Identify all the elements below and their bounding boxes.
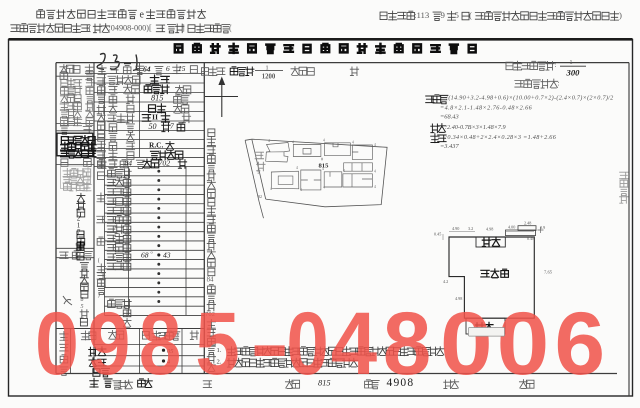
svg-text:9: 9 [87, 293, 130, 393]
svg-text:4: 4 [374, 170, 376, 174]
svg-text:4: 4 [292, 141, 294, 145]
svg-text:8: 8 [383, 293, 431, 393]
svg-text:84: 84 [207, 276, 214, 283]
svg-text:0: 0 [286, 293, 328, 393]
svg-text:5: 5 [195, 293, 240, 393]
svg-text:]: ] [182, 24, 185, 33]
svg-text:50: 50 [149, 122, 157, 131]
svg-text:0.48: 0.48 [527, 236, 534, 241]
svg-text:1: 1 [257, 170, 259, 175]
svg-text:1: 1 [569, 59, 572, 66]
svg-text::0.34×0.48+2×2.4×0.28×3 =1.48+: :0.34×0.48+2×2.4×0.28×3 =1.48+2.66 [445, 134, 557, 141]
svg-text:3.2: 3.2 [468, 226, 473, 231]
svg-text:4: 4 [331, 295, 377, 394]
svg-text:4: 4 [268, 139, 270, 143]
svg-text:4.98: 4.98 [486, 227, 493, 232]
svg-text:6: 6 [166, 64, 170, 73]
svg-text:4: 4 [322, 167, 324, 171]
svg-text::(14.90+3.2-4.98+0.6)×(10.00+0: :(14.90+3.2-4.98+0.6)×(10.00+0.7×2)-(2.4… [446, 95, 614, 102]
svg-text:0: 0 [497, 295, 550, 394]
svg-text:4: 4 [323, 139, 325, 143]
svg-text::: : [555, 61, 557, 69]
svg-text:R.C.: R.C. [149, 141, 164, 150]
svg-text:1200: 1200 [262, 73, 276, 80]
svg-text:4: 4 [374, 143, 376, 147]
svg-text:4: 4 [300, 188, 302, 192]
svg-text:68: 68 [141, 251, 149, 260]
svg-text:4: 4 [343, 169, 345, 173]
svg-text:e: e [140, 10, 145, 21]
svg-text:=3.437: =3.437 [440, 143, 459, 150]
svg-text::04908-000)[: :04908-000)[ [109, 24, 152, 33]
svg-text:0: 0 [35, 294, 79, 393]
svg-text:4.00: 4.00 [508, 225, 515, 230]
svg-text:8: 8 [81, 297, 84, 303]
svg-text:4: 4 [296, 166, 298, 170]
svg-text:82: 82 [258, 194, 262, 199]
svg-text:): ) [619, 10, 622, 20]
svg-text:2.48: 2.48 [524, 221, 531, 226]
svg-text:6: 6 [555, 295, 606, 394]
svg-text:84: 84 [125, 158, 133, 167]
svg-text:(: ( [89, 24, 92, 33]
svg-text:II: II [152, 112, 158, 121]
svg-text:=4.8×2.1-1.48×2.76-0.48×2.66: =4.8×2.1-1.48×2.76-0.48×2.66 [440, 105, 533, 112]
svg-text::2.40-0.7B×3×1.48×7.9: :2.40-0.7B×3×1.48×7.9 [445, 124, 506, 131]
svg-text:702: 702 [159, 158, 171, 167]
svg-text:64: 64 [143, 65, 151, 74]
svg-text:=68.43: =68.43 [440, 114, 459, 121]
svg-text:(: ( [469, 10, 472, 20]
svg-text:300: 300 [566, 68, 581, 78]
svg-text:5: 5 [455, 10, 460, 20]
svg-text::: : [558, 79, 560, 88]
svg-text:815: 815 [319, 163, 330, 170]
svg-text::: : [253, 66, 255, 74]
svg-text:4.90: 4.90 [452, 226, 459, 231]
svg-text:4: 4 [374, 185, 376, 189]
svg-text:4: 4 [323, 186, 325, 190]
svg-text:9: 9 [441, 10, 446, 20]
svg-text:0.45: 0.45 [434, 232, 441, 237]
svg-text:8: 8 [139, 293, 181, 393]
svg-text::113: :113 [414, 10, 430, 20]
svg-text:15: 15 [178, 64, 186, 73]
svg-text:-: - [250, 294, 289, 393]
svg-text:815: 815 [151, 93, 163, 102]
svg-text:(: ( [229, 24, 232, 33]
svg-text:4: 4 [270, 187, 272, 191]
svg-text:43: 43 [163, 251, 171, 260]
svg-text:4.2: 4.2 [443, 279, 448, 284]
svg-text:(: ( [98, 257, 100, 264]
svg-text:4: 4 [352, 141, 354, 145]
svg-text:5: 5 [81, 304, 84, 310]
svg-text:0: 0 [440, 295, 493, 394]
